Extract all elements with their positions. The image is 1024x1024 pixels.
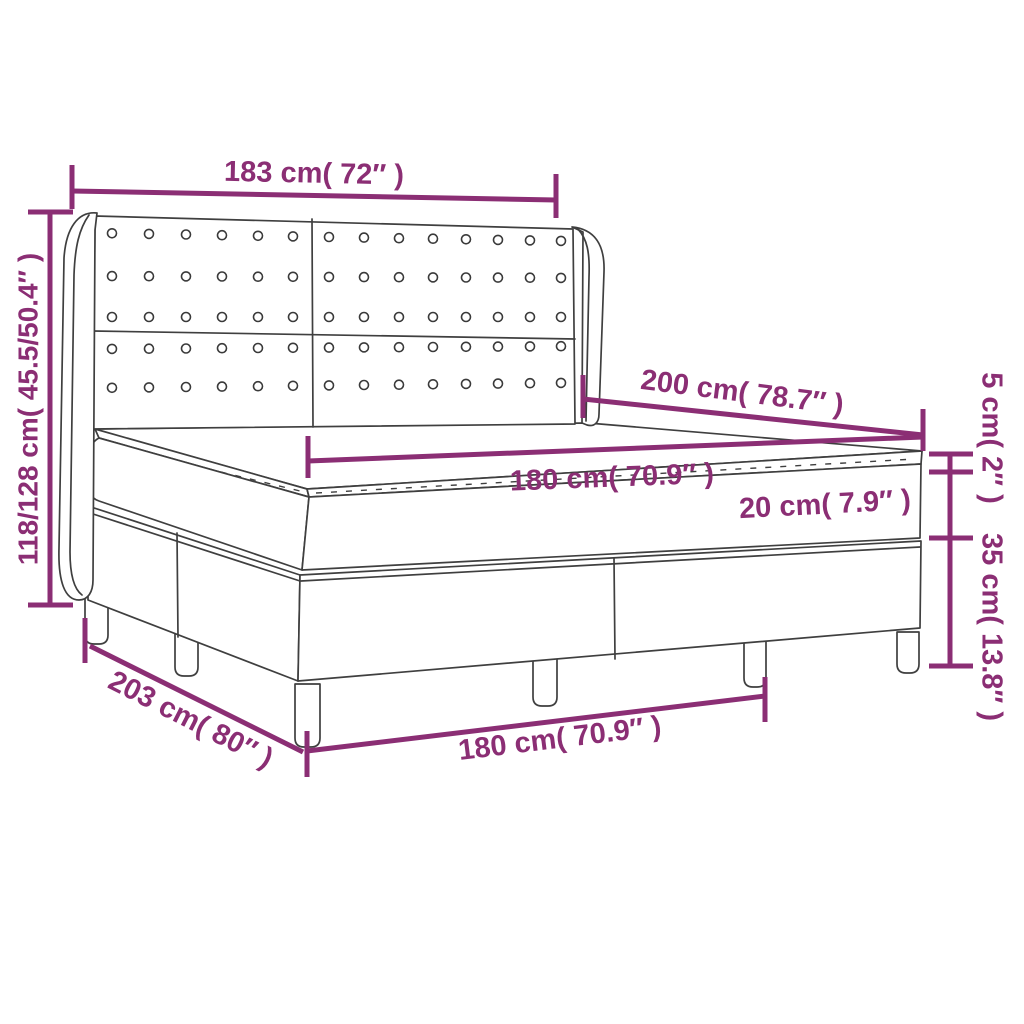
tufting-button [108,383,117,392]
tufting-button [494,235,503,244]
tufting-button [494,379,503,388]
dim-right-heights: 5 cm( 2″ ) 35 cm( 13.8″ ) [929,372,1007,721]
headboard-left-wing [59,213,97,600]
tufting-button [557,273,566,282]
tufting-button [218,344,227,353]
tufting-button [325,381,334,390]
tufting-button [360,273,369,282]
tufting-button [462,313,471,322]
bed-leg [533,657,557,706]
tufting-button [429,234,438,243]
tufting-button [218,272,227,281]
tufting-button [254,313,263,322]
tufting-button [289,343,298,352]
tufting-button [182,272,191,281]
tufting-button [218,231,227,240]
bed-leg [897,632,919,673]
base-panel-seam [177,533,178,637]
tufting-button [429,380,438,389]
tufting-button [462,273,471,282]
tufting-button [218,382,227,391]
tufting-button [526,313,535,322]
tufting-button [108,313,117,322]
tufting-button [494,313,503,322]
bed-line-art [59,213,922,747]
tufting-button [360,313,369,322]
tufting-button [182,344,191,353]
tufting-button [395,234,404,243]
tufting-button [182,230,191,239]
tufting-button [395,343,404,352]
tufting-button [254,272,263,281]
tufting-button [360,343,369,352]
tufting-button [360,233,369,242]
tufting-button [289,381,298,390]
headboard-panel [93,216,575,429]
tufting-button [557,342,566,351]
tufting-button [395,273,404,282]
tufting-button [526,236,535,245]
tufting-button [395,380,404,389]
tufting-button [108,344,117,353]
tufting-button [526,342,535,351]
label-headboard-width: 183 cm( 72″ ) [224,156,405,192]
bed-dimension-diagram: 183 cm( 72″ ) 118/128 cm( 45.5/50.4″ ) 2… [0,0,1024,1024]
tufting-button [218,313,227,322]
headboard-seam-vertical [312,219,313,427]
tufting-button [289,232,298,241]
dim-headboard-width: 183 cm( 72″ ) [72,156,556,218]
label-base-length: 203 cm( 80″ ) [103,665,278,775]
tufting-button [108,272,117,281]
tufting-button [325,313,334,322]
tufting-button [145,344,154,353]
tufting-button [254,382,263,391]
tufting-button [145,383,154,392]
tufting-button [289,313,298,322]
tufting-button [557,378,566,387]
tufting-button [254,344,263,353]
tufting-button [429,313,438,322]
tufting-button [325,343,334,352]
tufting-button [429,273,438,282]
tufting-button [429,343,438,352]
tufting-button [494,342,503,351]
tufting-button [145,313,154,322]
label-topper-height: 5 cm( 2″ ) [975,372,1007,504]
tufting-button [254,231,263,240]
diagram-canvas: 183 cm( 72″ ) 118/128 cm( 45.5/50.4″ ) 2… [0,0,1024,1024]
tufting-button [145,229,154,238]
tufting-button [462,379,471,388]
tufting-button [182,383,191,392]
tufting-button [145,272,154,281]
tufting-button [395,313,404,322]
tufting-button [325,233,334,242]
tufting-button [289,272,298,281]
tufting-button [108,229,117,238]
label-base-height: 35 cm( 13.8″ ) [975,533,1007,721]
tufting-button [494,273,503,282]
tufting-button [526,273,535,282]
tufting-button [462,235,471,244]
tufting-button [526,379,535,388]
tufting-button [360,381,369,390]
base-panel-seam [614,558,615,659]
label-overall-height: 118/128 cm( 45.5/50.4″ ) [12,253,43,565]
label-bed-length: 200 cm( 78.7″ ) [639,364,846,421]
tufting-button [557,313,566,322]
tufting-button [557,236,566,245]
tufting-button [182,313,191,322]
tufting-button [325,272,334,281]
tufting-button [462,342,471,351]
